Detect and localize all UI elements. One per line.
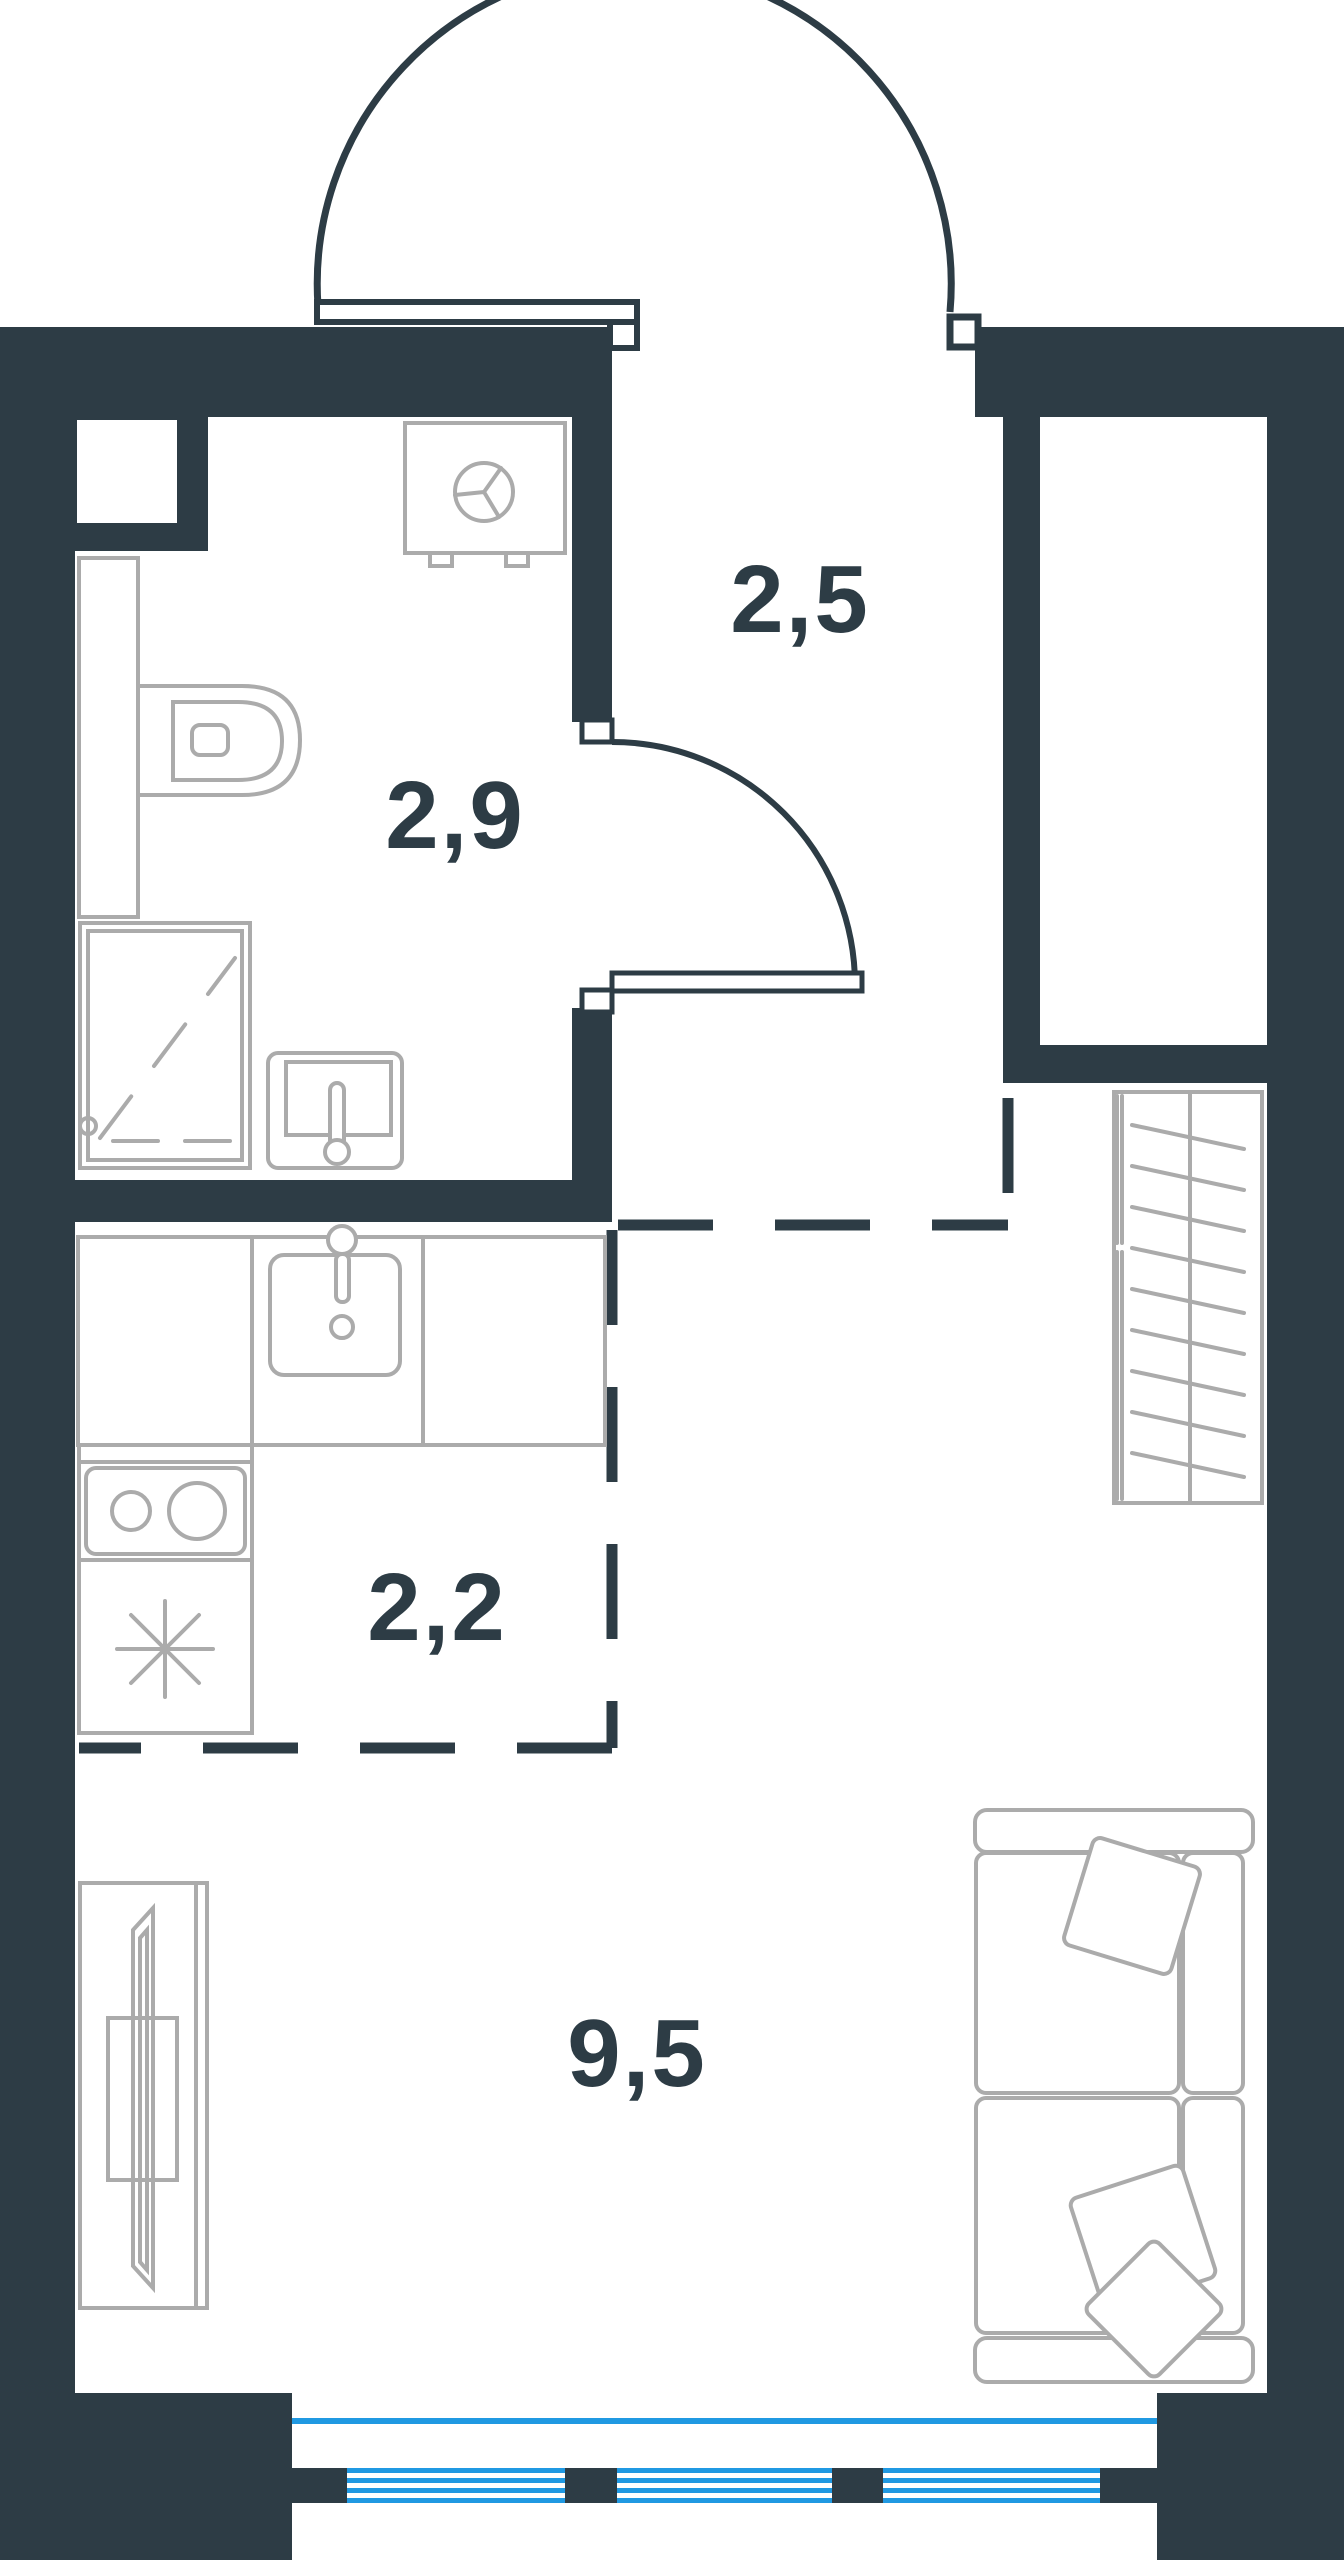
entrance-door-jamb bbox=[950, 317, 978, 347]
tv-stand-icon bbox=[80, 1883, 207, 2308]
sofa-icon bbox=[975, 1810, 1253, 2382]
wall-right-outer bbox=[1267, 327, 1344, 2560]
wall-top-left bbox=[0, 327, 612, 417]
room-label-hallway: 2,5 bbox=[730, 546, 869, 653]
bathroom-door-frame-bottom bbox=[582, 990, 612, 1012]
ventilation-shaft bbox=[77, 420, 177, 523]
wardrobe-icon bbox=[1114, 1092, 1262, 1503]
bathroom-door-frame-top bbox=[582, 720, 612, 742]
bathroom-door-swing-arc bbox=[612, 742, 855, 985]
bathroom-sink-icon bbox=[268, 1053, 402, 1168]
wall-left-outer bbox=[0, 327, 75, 2560]
window bbox=[292, 2421, 1157, 2501]
wall-bathroom-south bbox=[0, 1180, 612, 1222]
wall-window-pier-3 bbox=[832, 2468, 883, 2503]
room-label-kitchen: 2,2 bbox=[367, 1554, 506, 1661]
wall-bottom-right-block bbox=[1157, 2393, 1270, 2560]
floor-plan-canvas: 2,5 2,9 2,2 9,5 bbox=[0, 0, 1344, 2560]
kitchen-sink-icon bbox=[270, 1226, 400, 1375]
wall-window-pier-1 bbox=[292, 2468, 347, 2503]
shower-icon bbox=[80, 923, 250, 1168]
room-labels: 2,5 2,9 2,2 9,5 bbox=[367, 546, 869, 2107]
wall-closet-strip bbox=[1003, 417, 1040, 1083]
wall-closet-band bbox=[1003, 1045, 1270, 1083]
wall-window-pier-2 bbox=[565, 2468, 617, 2503]
bathroom-door-leaf bbox=[612, 973, 862, 991]
window-glazing-lines bbox=[347, 2471, 1100, 2501]
floor-plan-page: 2,5 2,9 2,2 9,5 bbox=[0, 0, 1344, 2560]
wall-window-pier-4 bbox=[1100, 2468, 1157, 2503]
washing-machine-icon bbox=[405, 423, 565, 566]
fridge-snowflake-icon bbox=[117, 1601, 213, 1697]
stove-icon bbox=[86, 1468, 245, 1554]
entrance-door-swing-arc bbox=[317, 0, 951, 312]
vanity-counter-icon bbox=[79, 558, 138, 917]
room-label-bathroom: 2,9 bbox=[385, 762, 524, 869]
room-label-living-room: 9,5 bbox=[567, 2000, 706, 2107]
entrance-door-hinge bbox=[610, 322, 637, 348]
wall-bottom-left-block bbox=[0, 2393, 292, 2560]
toilet-icon bbox=[138, 686, 300, 795]
wall-bathroom-east-upper bbox=[572, 417, 612, 722]
entrance-door-leaf bbox=[317, 302, 637, 322]
sofa-pillow-icon bbox=[1062, 1836, 1225, 2380]
